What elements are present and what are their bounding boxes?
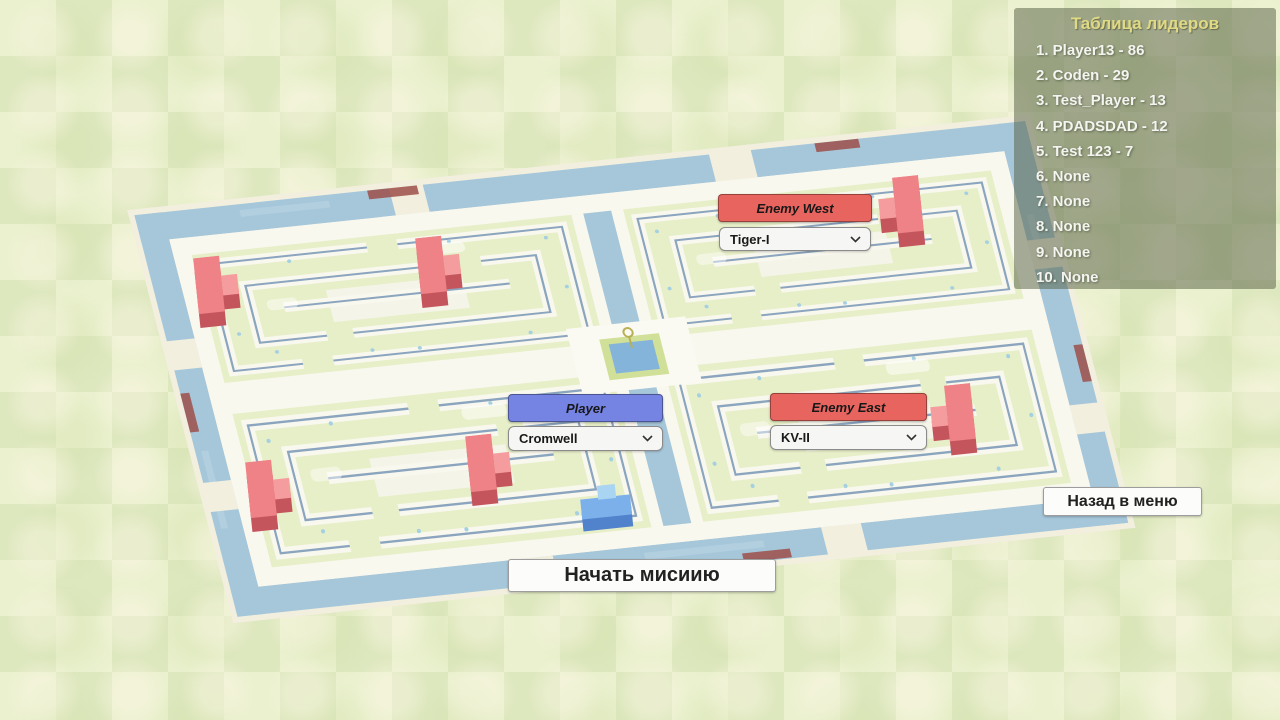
player-tank-select[interactable]: Cromwell [508,426,663,451]
leaderboard-entry: 1. Player13 - 86 [1014,38,1276,63]
enemy-tank-piece [922,382,984,463]
enemy-east-label: Enemy East [812,400,886,415]
enemy-east-header: Enemy East [770,393,927,421]
enemy-tank-piece [187,253,249,334]
enemy-tank-piece [409,233,471,314]
leaderboard-entry: 8. None [1014,214,1276,239]
leaderboard-entry: 3. Test_Player - 13 [1014,88,1276,113]
chevron-down-icon [906,434,917,441]
leaderboard-entry: 9. None [1014,240,1276,265]
enemy-west-tank-value: Tiger-I [730,232,770,247]
player-label: Player [566,401,605,416]
leaderboard-entry: 5. Test 123 - 7 [1014,139,1276,164]
enemy-tank-piece [870,174,932,255]
back-to-menu-button[interactable]: Назад в меню [1043,487,1202,516]
leaderboard-entry: 10. None [1014,265,1276,289]
enemy-east-tank-value: KV-II [781,430,810,445]
leaderboard-entry: 2. Coden - 29 [1014,63,1276,88]
enemy-tank-piece [239,457,301,538]
chevron-down-icon [642,435,653,442]
chevron-down-icon [850,236,861,243]
enemy-west-header: Enemy West [718,194,872,222]
leaderboard-entry: 7. None [1014,189,1276,214]
enemy-east-tank-select[interactable]: KV-II [770,425,927,450]
mission-setup-screen: Enemy West Tiger-I Player Cromwell Enemy… [0,0,1280,720]
player-header: Player [508,394,663,422]
maze-map-graphic [127,115,1136,624]
start-mission-button[interactable]: Начать мисиию [508,559,776,592]
leaderboard-entry: 6. None [1014,164,1276,189]
player-tank-value: Cromwell [519,431,578,446]
leaderboard-title: Таблица лидеров [1014,14,1276,34]
leaderboard-entry: 4. PDADSDAD - 12 [1014,114,1276,139]
leaderboard-panel: Таблица лидеров 1. Player13 - 86 2. Code… [1014,8,1276,289]
battle-map [127,115,1136,624]
player-tank-piece [575,478,638,534]
enemy-west-label: Enemy West [756,201,833,216]
enemy-west-tank-select[interactable]: Tiger-I [719,227,871,251]
